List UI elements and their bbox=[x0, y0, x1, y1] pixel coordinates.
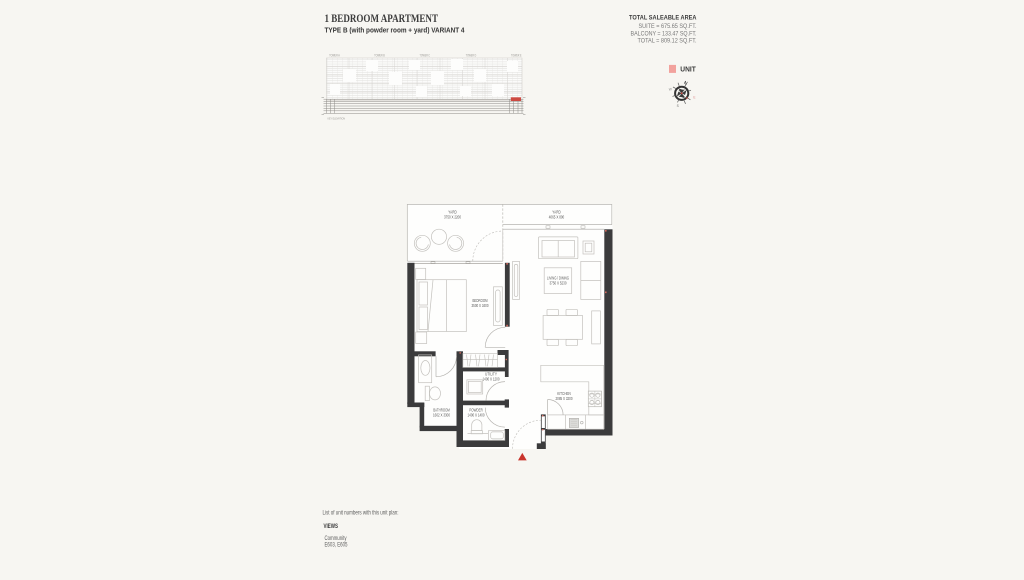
svg-text:TOTAL SALEABLE AREA: TOTAL SALEABLE AREA bbox=[629, 14, 697, 21]
svg-text:SUITE = 675.65 SQ.FT.: SUITE = 675.65 SQ.FT. bbox=[639, 23, 697, 30]
svg-text:S: S bbox=[677, 104, 679, 108]
svg-text:3750 X 2200: 3750 X 2200 bbox=[444, 215, 462, 220]
svg-text:E603, E605: E603, E605 bbox=[325, 542, 348, 549]
svg-text:TOWER E: TOWER E bbox=[511, 53, 522, 57]
svg-text:VIEWS: VIEWS bbox=[324, 523, 339, 530]
svg-text:TOWER A: TOWER A bbox=[329, 53, 340, 57]
svg-text:3750 X 5230: 3750 X 5230 bbox=[550, 281, 568, 286]
svg-text:UNIT: UNIT bbox=[680, 67, 696, 74]
svg-text:TYPE B (with powder room + yar: TYPE B (with powder room + yard) VARIANT… bbox=[325, 25, 465, 34]
svg-text:TOWER C: TOWER C bbox=[420, 53, 431, 57]
svg-text:W: W bbox=[669, 88, 672, 92]
svg-text:E: E bbox=[693, 96, 695, 100]
svg-text:2085 X 3200: 2085 X 3200 bbox=[556, 396, 574, 401]
svg-text:TOTAL = 809.12 SQ.FT.: TOTAL = 809.12 SQ.FT. bbox=[638, 37, 697, 44]
svg-text:1400 X 1400: 1400 X 1400 bbox=[468, 412, 486, 417]
svg-text:TOWER B: TOWER B bbox=[374, 53, 385, 57]
svg-text:3500 X 3400: 3500 X 3400 bbox=[472, 303, 490, 308]
svg-text:List of unit numbers with this: List of unit numbers with this unit plan… bbox=[323, 510, 399, 517]
svg-text:4065 X 800: 4065 X 800 bbox=[549, 215, 565, 220]
svg-text:1400 X 1200: 1400 X 1200 bbox=[483, 377, 501, 382]
svg-text:TOWER D: TOWER D bbox=[466, 53, 477, 57]
svg-text:1602 X 3300: 1602 X 3300 bbox=[433, 413, 451, 418]
svg-text:1 BEDROOM APARTMENT: 1 BEDROOM APARTMENT bbox=[325, 13, 439, 25]
svg-text:KEY ELEVATION: KEY ELEVATION bbox=[328, 117, 346, 121]
